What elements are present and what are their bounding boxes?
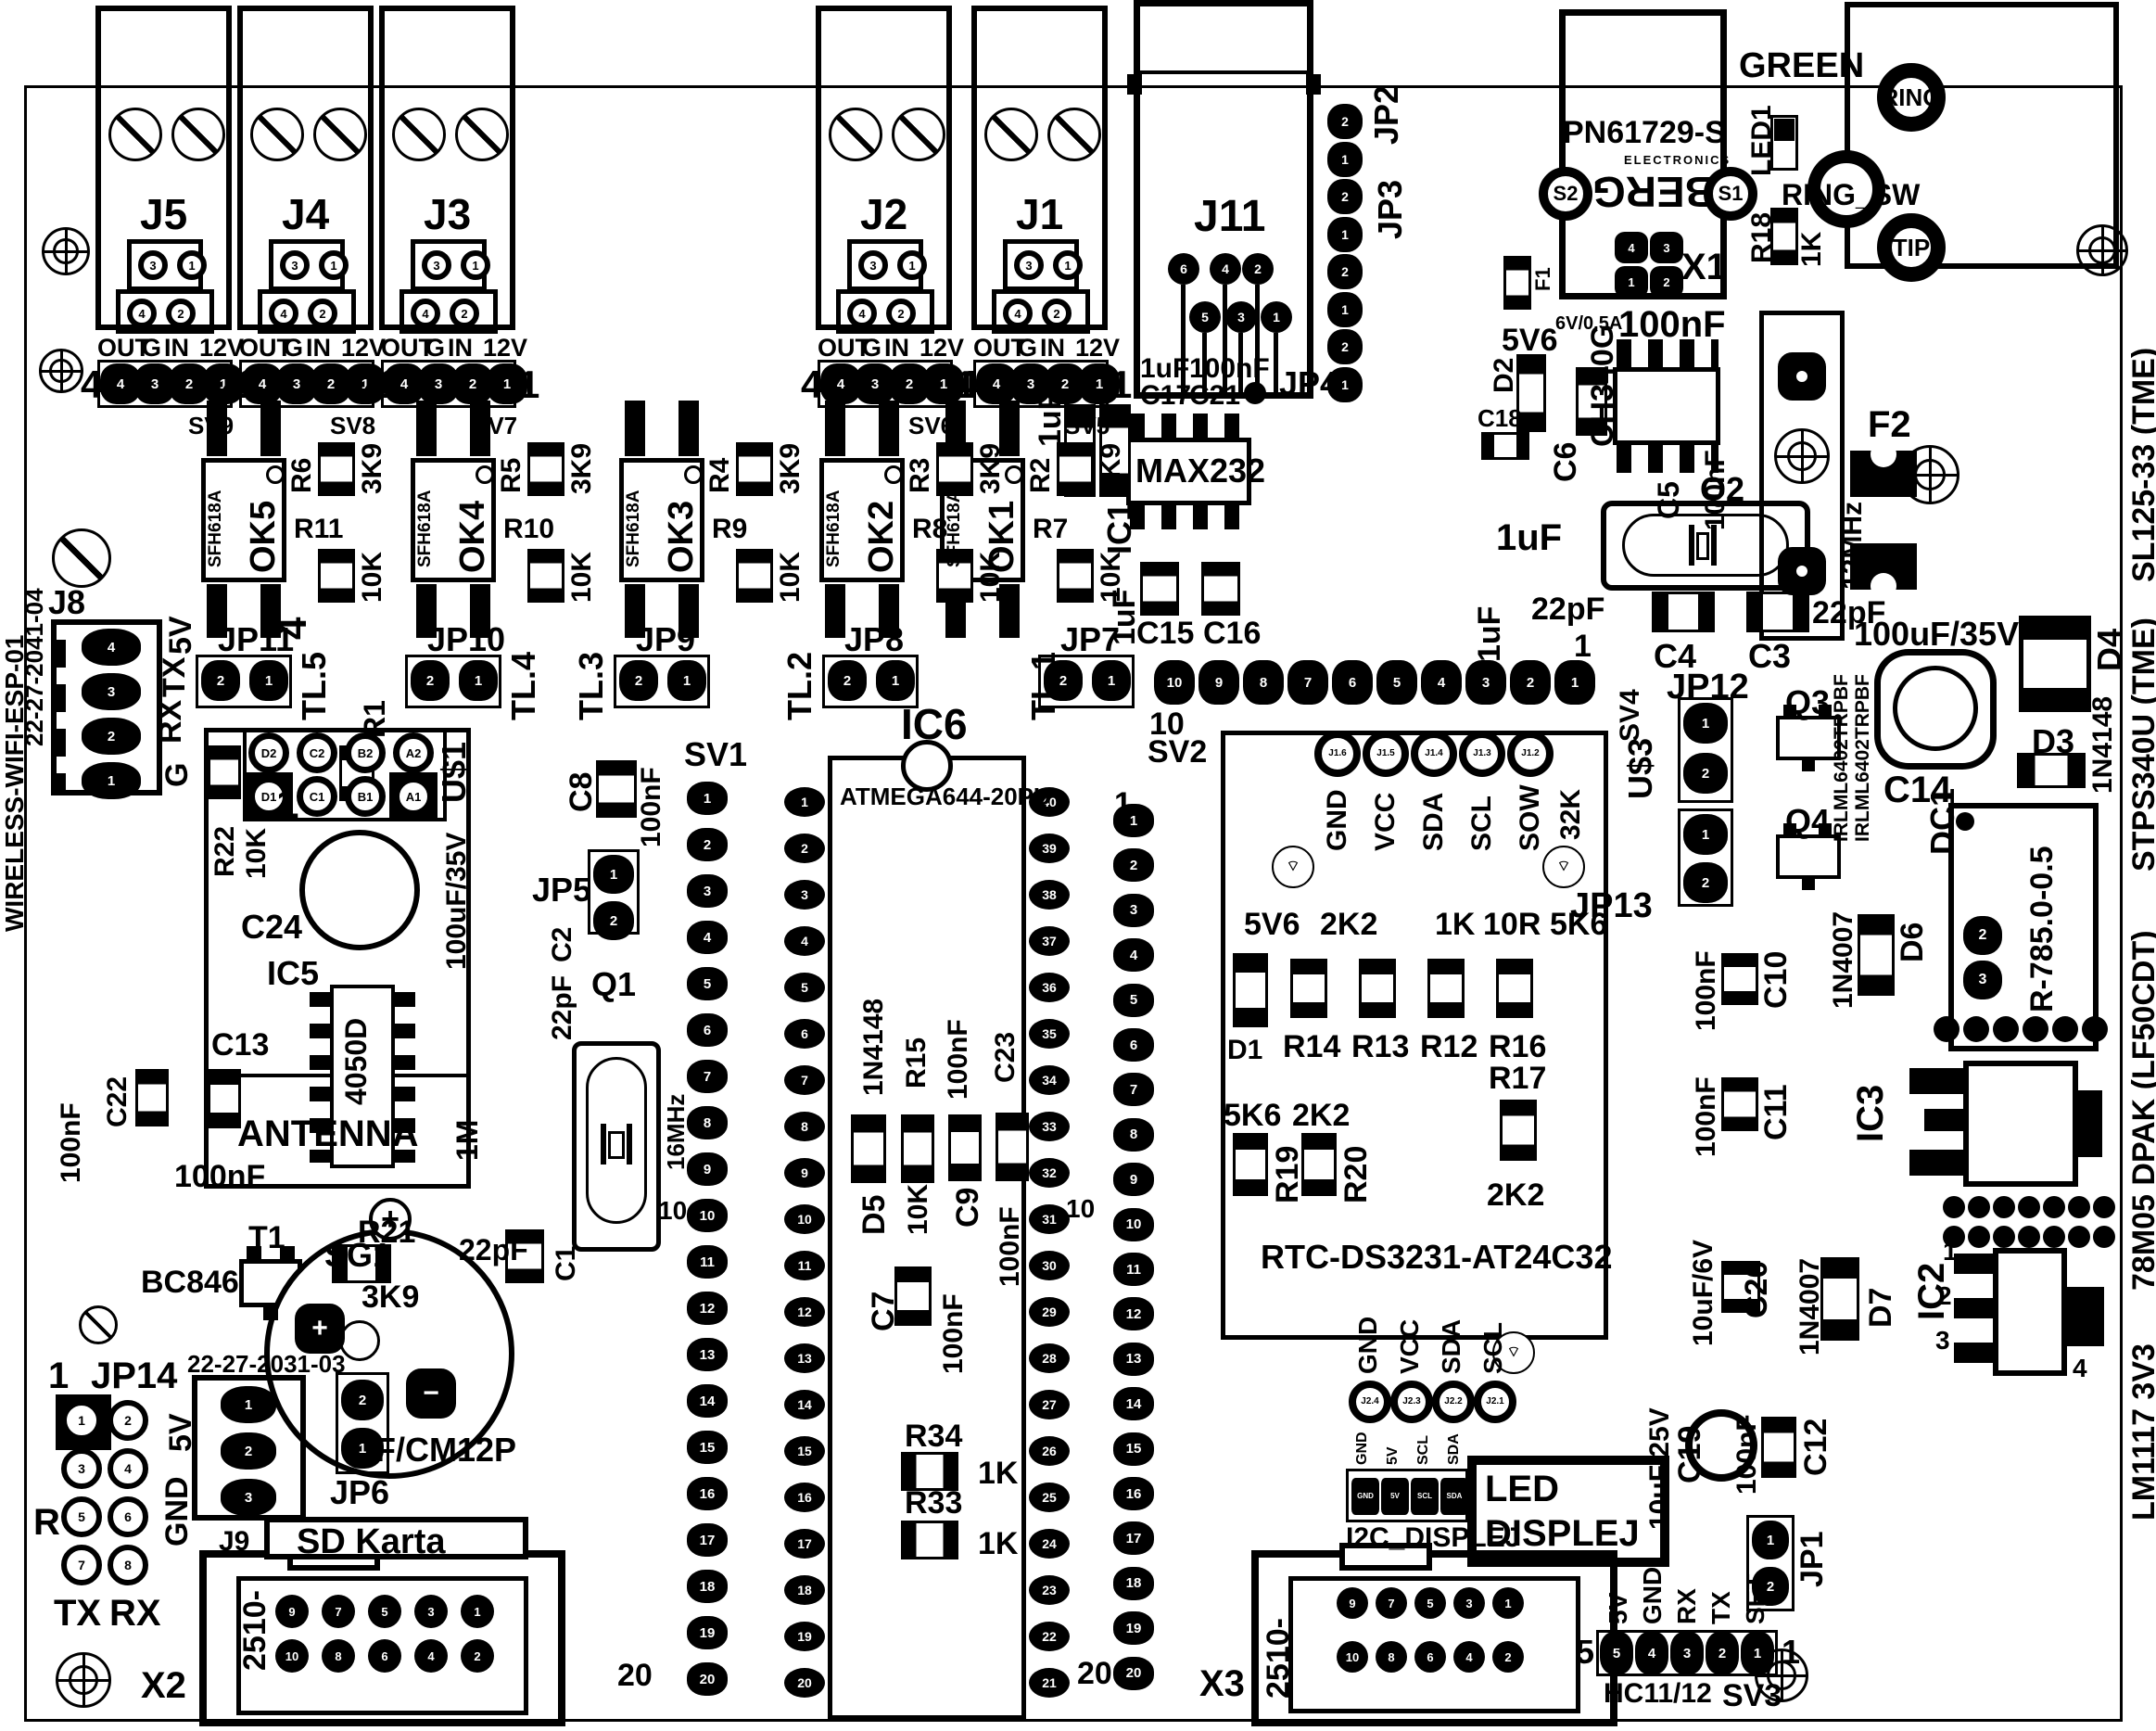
i2c-lbl-SCL: SCL (1416, 1435, 1431, 1465)
x3-pin-8: 8 (1376, 1641, 1407, 1673)
x2-pin-9: 9 (275, 1595, 309, 1628)
sv4-pin-4: 4 (1421, 660, 1462, 705)
jp4-label: JP4 (1279, 367, 1338, 401)
ic6-pin-3: 3 (784, 880, 825, 910)
j11-notch (1306, 74, 1321, 95)
ic2-lead (1954, 1343, 1995, 1363)
OK5-part: SFH618A (207, 490, 224, 567)
sv1-pin-18: 18 (687, 1570, 728, 1603)
relay-J5-screw (108, 108, 162, 161)
jp14-label: JP14 (91, 1357, 177, 1394)
pwr-pin-3: 3 (221, 1479, 276, 1516)
c12-value: 100nF (1733, 1414, 1761, 1495)
proto-pad (2018, 1226, 2040, 1248)
relay-J5-term-pin: 3 (138, 250, 168, 280)
r18-value: 1K (1798, 232, 1826, 267)
sv3-pin-5: 5 (1600, 1632, 1633, 1674)
R5-label: R5 (498, 458, 526, 493)
relay-J4-label: J4 (282, 193, 329, 235)
rtc-symbol: ⌔ (1272, 846, 1314, 888)
sv2-pin-12: 12 (1113, 1297, 1154, 1330)
R11-label: R11 (294, 515, 343, 543)
proto-pad (1943, 1196, 1965, 1218)
rtc-bot-VCC: VCC (1397, 1319, 1423, 1374)
x2-pin-5: 5 (368, 1595, 401, 1628)
relay-J3-screw (455, 108, 509, 161)
j8-hatch (57, 729, 66, 757)
ic6-pin-13: 13 (784, 1343, 825, 1373)
c1-label: C1 (552, 1246, 580, 1281)
relay-J1-term-pin: 2 (1042, 299, 1072, 328)
rtc-top-pin-J1.3: J1.3 (1459, 731, 1505, 777)
r14-footprint (1290, 959, 1327, 1018)
dc1-pad (1934, 1016, 1959, 1042)
ic6-pin-28: 28 (1029, 1343, 1070, 1373)
R8-label: R8 (912, 515, 947, 543)
JP10-label: JP10 (427, 623, 505, 656)
q4-lead (1802, 879, 1815, 890)
relay-J2-term-pin: 3 (858, 250, 888, 280)
d6-value: 1N4007 (1830, 911, 1858, 1009)
d1-footprint: ▼ (1233, 953, 1268, 1027)
max232-part: MAX232 (1135, 454, 1265, 488)
ic6-pin-37: 37 (1029, 926, 1070, 956)
r22-label: R22 (211, 826, 239, 877)
sv2-pin-16: 16 (1113, 1477, 1154, 1510)
led1-footprint-fill (1774, 119, 1795, 141)
jp5-pad-1: 1 (593, 855, 634, 894)
jp14-pin-3: 3 (61, 1448, 102, 1489)
sv1-pin-6: 6 (687, 1013, 728, 1047)
x3-pin-4: 4 (1453, 1641, 1485, 1673)
d1-value: 5V6 (1244, 909, 1300, 940)
q3-part: IRLML6402TRPBF (1832, 674, 1851, 842)
q3-lead (1802, 760, 1815, 771)
j11-line (1134, 70, 1313, 74)
c13-label: C13 (211, 1029, 269, 1061)
c14-body (1893, 666, 1978, 751)
relay-J1-right-num: 1 (1110, 365, 1132, 404)
ic6-pin-5: 5 (784, 973, 825, 1002)
OK1-notch (1005, 465, 1023, 484)
R5-value: 3K9 (568, 443, 596, 494)
ic3-body (1963, 1061, 2078, 1187)
ic6-pin-12: 12 (784, 1297, 825, 1327)
OK3-part: SFH618A (625, 490, 642, 567)
ic5-label: IC5 (267, 957, 319, 990)
ic2-pin1: 1 (1943, 1239, 1958, 1265)
sv2-pin20-label: 20 (1077, 1658, 1112, 1689)
d2-value: 5V6 (1502, 325, 1558, 356)
ic6-pin-6: 6 (784, 1019, 825, 1049)
relay-J1-term-pin: 4 (1003, 299, 1033, 328)
R6-footprint (318, 442, 355, 496)
R4-footprint (736, 442, 773, 496)
relay-J3-term-pin: 3 (422, 250, 451, 280)
jp6-label: JP6 (330, 1476, 389, 1509)
r16-label: R16 (1489, 1031, 1546, 1063)
relay-J1-term-pin: 1 (1053, 250, 1083, 280)
rtc-top-pin-J1.5: J1.5 (1363, 731, 1409, 777)
rtc-top-SCL: SCL (1468, 795, 1496, 851)
sv4-pin-8: 8 (1243, 660, 1284, 705)
d5-value: 1N4148 (860, 999, 888, 1096)
relay-J2-screw (829, 108, 882, 161)
JP8-pad-1: 1 (876, 660, 915, 701)
rtc-top-pin-J1.4: J1.4 (1411, 731, 1457, 777)
R9-value: 10K (777, 552, 805, 603)
c4-value: 22pF (1531, 593, 1604, 625)
relay-J2-left-num: 4 (801, 365, 822, 404)
r1-value: 1M (452, 1120, 482, 1161)
j8-pin-4: 4 (82, 629, 141, 666)
j11-pin-5: 5 (1189, 301, 1221, 333)
sv1-pin-4: 4 (687, 921, 728, 954)
d7-label: D7 (1865, 1288, 1896, 1328)
r22-footprint (208, 745, 241, 799)
OK4-part: SFH618A (416, 490, 434, 567)
OK4-notch (476, 465, 494, 484)
dc1-pin-2: 2 (1963, 916, 2002, 955)
q2-symbol (1696, 532, 1709, 560)
r14-label: R14 (1283, 1031, 1340, 1063)
j8-g: G (161, 763, 193, 787)
d2-label: D2 (1490, 358, 1518, 393)
OK3-label: OK3 (664, 501, 699, 573)
c20-label: C20 (1741, 1261, 1772, 1318)
rtc-bot-SCL: SCL (1480, 1322, 1506, 1374)
ch340-label: CH340G (1587, 325, 1618, 447)
r33-label: R33 (905, 1487, 962, 1519)
c11-value: 100nF (1693, 1076, 1720, 1157)
ic6-pin-19: 19 (784, 1622, 825, 1651)
ic2-pin3: 3 (1935, 1328, 1950, 1354)
relay-J3-g: G (425, 336, 445, 361)
rtc-top-SDA: SDA (1420, 793, 1448, 851)
JP7-label: JP7 (1060, 623, 1120, 656)
relay-J5-screw (171, 108, 225, 161)
relay-J1-screw (984, 108, 1038, 161)
x2-pin-8: 8 (322, 1639, 355, 1673)
jp13-pad-2: 2 (1683, 862, 1728, 903)
relay-J2-label: J2 (860, 193, 907, 235)
sv2-pin-17: 17 (1113, 1521, 1154, 1555)
sv1-pin-12: 12 (687, 1292, 728, 1325)
sv2-pin-19: 19 (1113, 1611, 1154, 1645)
q1-symbol (608, 1131, 625, 1159)
x1-label: X1 (1681, 248, 1727, 286)
SV5-label: SV5 (1064, 414, 1110, 438)
sd-karta-label: SD Karta (297, 1524, 446, 1559)
OK1-label: OK1 (984, 501, 1020, 573)
tip-pad: TIP (1877, 213, 1946, 282)
sv1-pin-19: 19 (687, 1616, 728, 1649)
rtc-top-pin-J1.6: J1.6 (1314, 731, 1361, 777)
sv1-pin-2: 2 (687, 828, 728, 861)
rtc-top-pin-J1.2: J1.2 (1507, 731, 1554, 777)
d4-label: D4 (2093, 629, 2126, 671)
i2c-lbl-5V: 5V (1386, 1446, 1401, 1465)
r13-footprint (1359, 959, 1396, 1018)
rtc-32k: 32K (1557, 789, 1585, 840)
d1-label: D1 (1227, 1037, 1262, 1064)
sv4-pin-7: 7 (1287, 660, 1328, 705)
ic6-pin-33: 33 (1029, 1112, 1070, 1141)
d7-value: 1N4007 (1796, 1258, 1824, 1356)
r16-footprint (1496, 959, 1533, 1018)
ic6-pin-25: 25 (1029, 1483, 1070, 1512)
x3-pin-5: 5 (1414, 1587, 1446, 1619)
c21-label: C21 (1189, 382, 1240, 410)
c10-footprint (1721, 953, 1758, 1005)
ch340-body (1613, 367, 1720, 445)
OK5-pin (260, 401, 281, 456)
ic6-pin-31: 31 (1029, 1204, 1070, 1234)
extra-100nf: 100nF (174, 1161, 265, 1192)
R7-footprint (1057, 549, 1094, 603)
led-display-line1: LED (1485, 1470, 1559, 1508)
jp-col-pad-1: 1 (1327, 142, 1363, 177)
relay-J4-in: IN (306, 336, 331, 361)
OK4-pin (416, 401, 437, 456)
r34-label: R34 (905, 1420, 962, 1452)
c21-pad (1244, 382, 1266, 404)
led-display-line2: DISPLEJ (1485, 1515, 1640, 1552)
jp14-pin-8: 8 (108, 1545, 148, 1585)
ic2-tab (2065, 1287, 2104, 1346)
R10-value: 10K (568, 552, 596, 603)
proto-pad (2093, 1226, 2115, 1248)
rtc-top-SOW: SOW (1516, 784, 1544, 851)
jp12-pad-2: 2 (1683, 753, 1728, 794)
pn-brand: BERG (1592, 171, 1716, 213)
dc1-pad (2023, 1016, 2048, 1042)
right-margin-stps: STPS340U (TME) (2128, 617, 2156, 872)
relay-J4-term-pin: 1 (319, 250, 349, 280)
jp13-pad-1: 1 (1683, 814, 1728, 855)
sv4-pin-5: 5 (1376, 660, 1417, 705)
relay-J3-label: J3 (424, 193, 471, 235)
right-margin-sl125: SL125-33 (TME) (2128, 348, 2156, 582)
R10-footprint (527, 549, 564, 603)
TL.4-label: TL.4 (507, 652, 540, 720)
r20-label: R20 (1340, 1146, 1372, 1203)
u1-pin-B1: B1 (345, 776, 386, 817)
c15-label: C15 (1136, 617, 1194, 649)
R6-label: R6 (288, 458, 316, 493)
r21-value: 3K9 (361, 1281, 419, 1313)
green-label: GREEN (1739, 48, 1864, 83)
sv1-pin-11: 11 (687, 1245, 728, 1279)
c23-label: C23 (992, 1032, 1020, 1083)
fiducial-target (39, 349, 83, 393)
j8-pin-1: 1 (82, 762, 141, 799)
relay-J2-term-pin: 1 (897, 250, 927, 280)
x3-pin-3: 3 (1453, 1587, 1485, 1619)
c23-footprint (996, 1113, 1029, 1181)
jp14-pin-4: 4 (108, 1448, 148, 1489)
r33-value: 1K (978, 1528, 1018, 1559)
x2-pin-7: 7 (322, 1595, 355, 1628)
x3-pin-2: 2 (1492, 1641, 1524, 1673)
x2-pin-10: 10 (275, 1639, 309, 1673)
dc1-label: DC1 (1926, 788, 1959, 855)
x3-pin-6: 6 (1414, 1641, 1446, 1673)
j11-pin-2: 2 (1242, 253, 1274, 285)
proto-pad (1968, 1196, 1990, 1218)
R10-label: R10 (503, 515, 554, 543)
r12-footprint (1427, 959, 1465, 1018)
JP9-pad-1: 1 (667, 660, 706, 701)
x2-label: X2 (141, 1667, 186, 1704)
sv1-pin-5: 5 (687, 967, 728, 1000)
u3-label: U$3 (1624, 738, 1657, 799)
relay-J5-left-num: 4 (81, 365, 102, 404)
dc1-pad (2052, 1016, 2078, 1042)
f2-target (1774, 428, 1830, 484)
i2c-lbl-GND: GND (1355, 1432, 1370, 1465)
ic6-label: IC6 (901, 703, 968, 745)
rtc-top-GND: GND (1324, 789, 1351, 851)
pcb-layout-diagram: WIRELESS-WIFI-ESP-01 LM1117 3V3 78M05 DP… (0, 0, 2156, 1731)
ic6-pin-15: 15 (784, 1436, 825, 1466)
relay-J4-term-pin: 4 (269, 299, 298, 328)
r15-footprint (901, 1114, 934, 1183)
relay-J5-12v: 12V (199, 336, 244, 361)
sv1-pin-17: 17 (687, 1523, 728, 1557)
ring-sw-label: RING_SW (1782, 180, 1920, 210)
q2-freq: 12MHz (1839, 502, 1867, 590)
c13-footprint (208, 1069, 241, 1128)
sv1-pin-10: 10 (687, 1199, 728, 1232)
pwr-gnd: GND (161, 1476, 193, 1546)
x2-pin-1: 1 (461, 1595, 494, 1628)
R7-value: 10K (1097, 552, 1125, 603)
x3-pin-1: 1 (1492, 1587, 1524, 1619)
relay-J5-label: J5 (140, 193, 187, 235)
ic6-pin-8: 8 (784, 1112, 825, 1141)
r13-value: 1K (1435, 909, 1475, 940)
proto-pad (1993, 1196, 2015, 1218)
r20-value: 2K2 (1292, 1100, 1350, 1131)
c3-footprint (1746, 592, 1809, 632)
ic6-pin-17: 17 (784, 1529, 825, 1559)
sv3-pin5: 5 (1576, 1636, 1594, 1669)
x2-pin-4: 4 (414, 1639, 448, 1673)
f2-label: F2 (1868, 406, 1911, 443)
sv1-pin-9: 9 (687, 1152, 728, 1186)
x3-pin-10: 10 (1337, 1641, 1368, 1673)
JP9-pad-2: 2 (619, 660, 658, 701)
jp2-label: JP2 (1370, 85, 1403, 145)
rtc-bot-pin-J2.1: J2.1 (1474, 1381, 1516, 1423)
OK3-notch (684, 465, 703, 484)
ic6-pin-1: 1 (784, 787, 825, 817)
right-margin-lm1117: LM1117 3V3 (2128, 1343, 2156, 1521)
sv2-pin1-label: 1 (1114, 788, 1132, 820)
ic6-pin-11: 11 (784, 1251, 825, 1280)
sv2-pin-8: 8 (1113, 1118, 1154, 1152)
max232-pins-bottom (1130, 505, 1248, 529)
sv4-pin-2: 2 (1510, 660, 1551, 705)
c9-value: 100nF (945, 1019, 972, 1100)
relay-J2-term-pin: 4 (847, 299, 877, 328)
r13-label: R13 (1351, 1031, 1409, 1063)
sv3-lbl-RX: RX (1674, 1588, 1700, 1624)
q2-symbol (1689, 525, 1694, 566)
ic3-lead (1909, 1150, 1965, 1176)
j8-pin-3: 3 (82, 673, 141, 710)
dc1-pad (1993, 1016, 2019, 1042)
c22-value: 100nF (57, 1102, 85, 1183)
sv4-pin-10: 10 (1154, 660, 1195, 705)
jp1-pad-1: 1 (1752, 1521, 1789, 1559)
sv1-pin-15: 15 (687, 1431, 728, 1464)
sg1-label: SG1 (324, 1239, 391, 1272)
jp6-pad-2: 2 (341, 1380, 384, 1420)
OK2-pin (879, 401, 899, 456)
c7-label: C7 (868, 1292, 899, 1331)
c1-value: 22pF (459, 1235, 528, 1265)
sv3-label: SV3 (1722, 1680, 1782, 1712)
jp-col-pad-3: 1 (1327, 217, 1363, 252)
d3-label: D3 (2032, 725, 2074, 758)
relay-J3-right-num: 1 (518, 365, 539, 404)
sv3-pin-4: 4 (1635, 1632, 1668, 1674)
JP11-pad-2: 2 (201, 660, 240, 701)
ic6-pin-27: 27 (1029, 1390, 1070, 1419)
jp1-label: JP1 (1796, 1532, 1828, 1588)
ic6-pin-4: 4 (784, 926, 825, 956)
t1-label: T1 (248, 1222, 285, 1254)
sv4-pin10-label: 10 (1149, 708, 1185, 740)
d5-footprint: ▼ (851, 1114, 886, 1183)
ic6-pin-21: 21 (1029, 1668, 1070, 1698)
ic6-pin-10: 10 (784, 1204, 825, 1234)
c2-value: 22pF (549, 975, 577, 1040)
proto-pad (2093, 1196, 2115, 1218)
OK4-label: OK4 (455, 501, 490, 573)
R2-value: 3K9 (1097, 443, 1125, 494)
relay-J5-in: IN (164, 336, 189, 361)
u1-pin-C1: C1 (297, 776, 337, 817)
dc1-pad (1963, 1016, 1989, 1042)
d5-label: D5 (858, 1195, 890, 1235)
i2c-pin-GND: GND (1351, 1478, 1379, 1515)
u1-pin-D2: D2 (248, 732, 289, 773)
c8-value: 100nF (638, 767, 666, 847)
j8-hatch (57, 684, 66, 712)
jp14-pin-5: 5 (61, 1496, 102, 1537)
proto-pad (2043, 1226, 2065, 1248)
d7-footprint: ▼ (1820, 1257, 1859, 1341)
d3-value: 1N4148 (2089, 696, 2117, 794)
u1-pin-A1: A1 (393, 776, 434, 817)
sv3-lbl-TX: TX (1708, 1591, 1734, 1624)
pn-brand-sub: ELECTRONICS (1624, 154, 1731, 166)
c10-value: 100nF (1693, 950, 1720, 1031)
relay-J1-in: IN (1040, 336, 1065, 361)
c14-value: 100uF/35V (1854, 617, 2019, 651)
relay-J5-term-pin: 4 (127, 299, 157, 328)
x1-pin-4: 4 (1615, 232, 1648, 263)
sv1-pin-8: 8 (687, 1106, 728, 1139)
JP11-pad-1: 1 (249, 660, 288, 701)
q1-label: Q1 (591, 968, 636, 1001)
R2-footprint (1057, 442, 1094, 496)
OK2-pin (825, 401, 845, 456)
sv2-pin-9: 9 (1113, 1163, 1154, 1196)
